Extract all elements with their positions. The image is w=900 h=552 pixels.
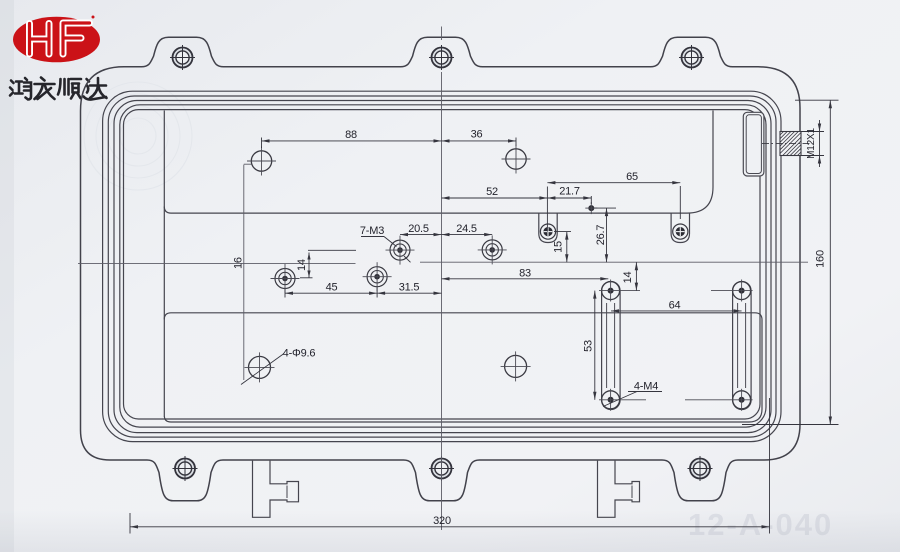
svg-text:12-A-040: 12-A-040 bbox=[688, 507, 833, 542]
svg-text:15: 15 bbox=[553, 241, 565, 253]
svg-text:52: 52 bbox=[486, 186, 498, 198]
svg-text:20.5: 20.5 bbox=[408, 223, 429, 235]
svg-text:320: 320 bbox=[433, 515, 451, 527]
svg-text:14: 14 bbox=[622, 272, 634, 284]
svg-text:26.7: 26.7 bbox=[595, 225, 607, 246]
svg-text:53: 53 bbox=[583, 340, 595, 352]
svg-text:14: 14 bbox=[296, 259, 308, 271]
svg-text:45: 45 bbox=[326, 282, 338, 294]
svg-text:88: 88 bbox=[345, 129, 357, 141]
svg-text:160: 160 bbox=[815, 250, 827, 268]
svg-text:21.7: 21.7 bbox=[559, 186, 580, 198]
svg-text:36: 36 bbox=[471, 129, 483, 141]
svg-text:M12X1: M12X1 bbox=[806, 128, 817, 159]
svg-text:7-M3: 7-M3 bbox=[360, 225, 384, 237]
svg-text:31.5: 31.5 bbox=[399, 282, 420, 294]
svg-text:4-M4: 4-M4 bbox=[634, 381, 658, 393]
svg-text:4-Φ9.6: 4-Φ9.6 bbox=[283, 348, 316, 360]
svg-text:65: 65 bbox=[626, 171, 638, 183]
svg-text:16: 16 bbox=[233, 257, 245, 269]
svg-text:64: 64 bbox=[669, 300, 681, 312]
svg-text:24.5: 24.5 bbox=[456, 223, 477, 235]
svg-text:83: 83 bbox=[519, 268, 531, 280]
